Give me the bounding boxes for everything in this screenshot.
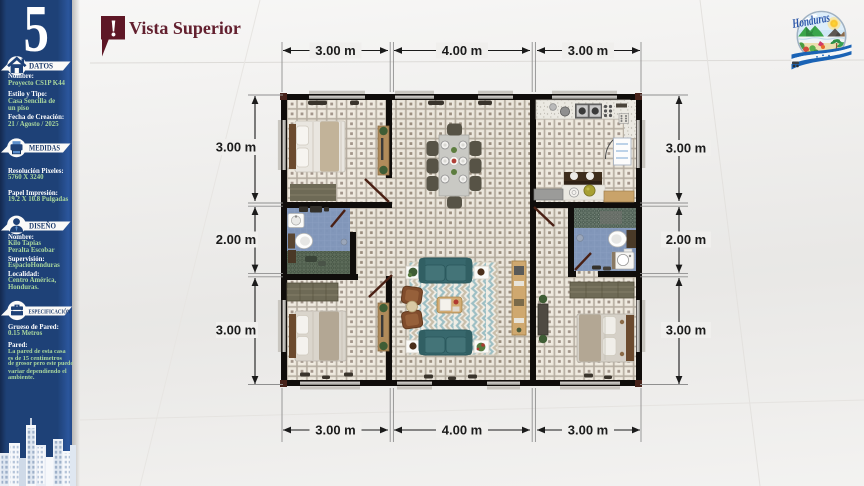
svg-text:4.00 m: 4.00 m [442,43,482,58]
svg-text:3.00 m: 3.00 m [666,141,706,156]
svg-text:3.00 m: 3.00 m [666,323,706,338]
svg-text:2.00 m: 2.00 m [666,232,706,247]
svg-text:!: ! [110,17,118,43]
svg-text:3.00 m: 3.00 m [315,423,355,438]
svg-text:2.00 m: 2.00 m [216,232,256,247]
svg-text:3.00 m: 3.00 m [315,43,355,58]
svg-text:3.00 m: 3.00 m [216,140,256,155]
svg-text:3.00 m: 3.00 m [568,423,608,438]
svg-text:3.00 m: 3.00 m [216,323,256,338]
svg-text:3.00 m: 3.00 m [568,43,608,58]
svg-text:4.00 m: 4.00 m [442,423,482,438]
